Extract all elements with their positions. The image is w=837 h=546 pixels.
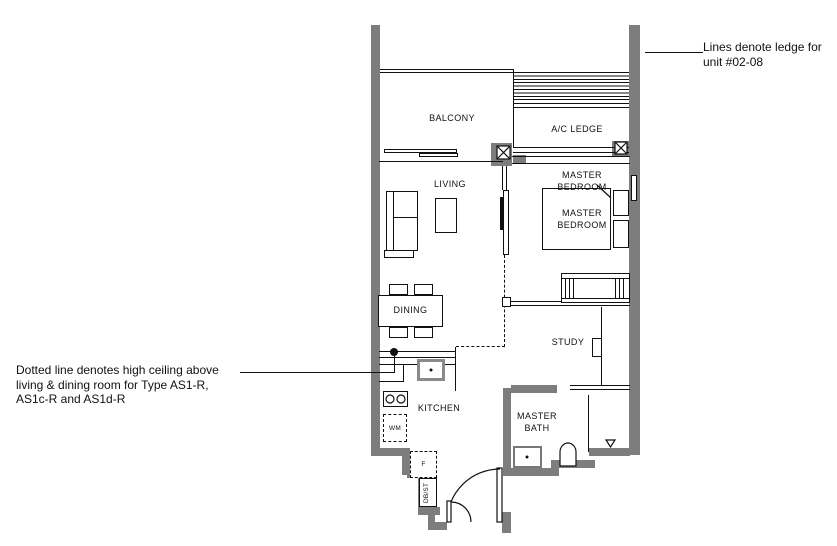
- sofa-back-line: [393, 191, 394, 251]
- high-ceiling-dashed-horizontal: [456, 346, 505, 347]
- bedroom-top-window: [512, 156, 630, 164]
- living-label: LIVING: [420, 179, 480, 191]
- kitchen-sink: [417, 359, 445, 381]
- dining-chair: [414, 284, 433, 295]
- ceiling-note-dot: [390, 348, 398, 356]
- ceiling-note-leader-v: [394, 353, 395, 373]
- sliding-door-panel-2: [419, 153, 458, 157]
- wall-bath-bottom-2: [551, 460, 595, 468]
- wardrobe-rod-line: [573, 278, 574, 298]
- kitchen-label: KITCHEN: [412, 403, 466, 415]
- dining-chair: [389, 284, 408, 295]
- kitchen-counter-cabinet: [379, 365, 404, 382]
- sofa-chaise: [384, 250, 414, 258]
- dining-label: DINING: [384, 305, 437, 317]
- living-top-line: [379, 161, 503, 162]
- fridge-label: F: [410, 461, 437, 469]
- entry-door-swing-arc: [447, 469, 500, 522]
- db-store-label: DB/ST: [423, 480, 433, 505]
- study-chair: [592, 338, 602, 357]
- ac-ledge-hatch-bottom: [514, 103, 629, 108]
- entry-door-small-arc: [451, 502, 471, 522]
- bath-sink: [513, 446, 542, 468]
- wardrobe-rod-line: [569, 278, 570, 298]
- right-wall-window-slot: [631, 175, 637, 201]
- ledge-note: Lines denote ledge for unit #02-08: [703, 40, 835, 69]
- wall-segment-left: [371, 25, 380, 448]
- wardrobe-rod-line: [565, 278, 566, 298]
- sofa-cushion-line: [393, 217, 418, 218]
- master-bedroom-callout-label: MASTER BEDROOM: [550, 170, 614, 193]
- wardrobe-shelf-line: [561, 298, 630, 299]
- ac-ledge-hatch: [514, 72, 629, 102]
- wall-bedroom-study-post: [502, 297, 511, 307]
- ceiling-note-leader-h: [240, 372, 394, 373]
- coffee-table: [435, 198, 457, 233]
- wall-bath-bottom-1: [503, 468, 559, 476]
- balcony-label: BALCONY: [410, 113, 494, 125]
- bedside-table: [613, 220, 629, 248]
- ac-ledge-window: [513, 147, 629, 153]
- wardrobe-rod-line: [619, 278, 620, 298]
- washing-machine-label: WM: [383, 425, 407, 433]
- partition-dark-panel: [500, 197, 503, 230]
- column-left: [491, 143, 512, 166]
- dining-chair: [414, 327, 433, 338]
- kitchen-counter-inner-line: [379, 357, 456, 358]
- kitchen-counter-right-edge: [455, 347, 456, 391]
- ceiling-note: Dotted line denotes high ceiling above l…: [16, 363, 248, 407]
- wardrobe-rod-line: [623, 278, 624, 298]
- ledge-note-leader: [645, 52, 703, 53]
- wall-study-bath: [570, 385, 630, 390]
- bath-shower-divider: [588, 395, 589, 452]
- partition-track: [502, 166, 507, 190]
- wall-bath-top: [511, 385, 557, 393]
- wall-segment-right: [629, 25, 640, 455]
- wall-step-7: [428, 522, 447, 530]
- sofa: [386, 191, 418, 251]
- wardrobe-rod-line: [615, 278, 616, 298]
- entry-door-small-leaf: [447, 501, 451, 522]
- shower-drain-icon: [606, 440, 615, 447]
- dining-chair: [389, 327, 408, 338]
- partition-panel: [503, 190, 509, 255]
- wall-entry-right: [502, 512, 511, 533]
- master-bedroom-label: MASTER BEDROOM: [550, 208, 614, 231]
- master-bath-label: MASTER BATH: [508, 411, 566, 434]
- ac-ledge-label: A/C LEDGE: [538, 124, 616, 136]
- balcony-top-edge: [380, 69, 513, 73]
- study-label: STUDY: [543, 337, 593, 349]
- floor-plan: WM F DB/ST BALCONY A/C LEDGE LIVING: [0, 0, 837, 546]
- stove: [383, 391, 408, 407]
- wall-bath-bottom-3: [589, 448, 630, 456]
- bedside-table: [613, 190, 629, 216]
